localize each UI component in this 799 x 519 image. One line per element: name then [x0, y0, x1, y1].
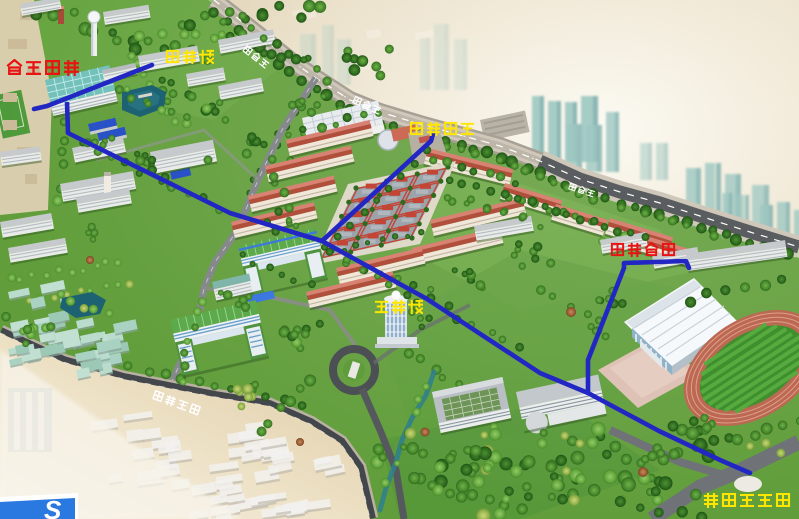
svg-text:S: S — [44, 495, 62, 519]
